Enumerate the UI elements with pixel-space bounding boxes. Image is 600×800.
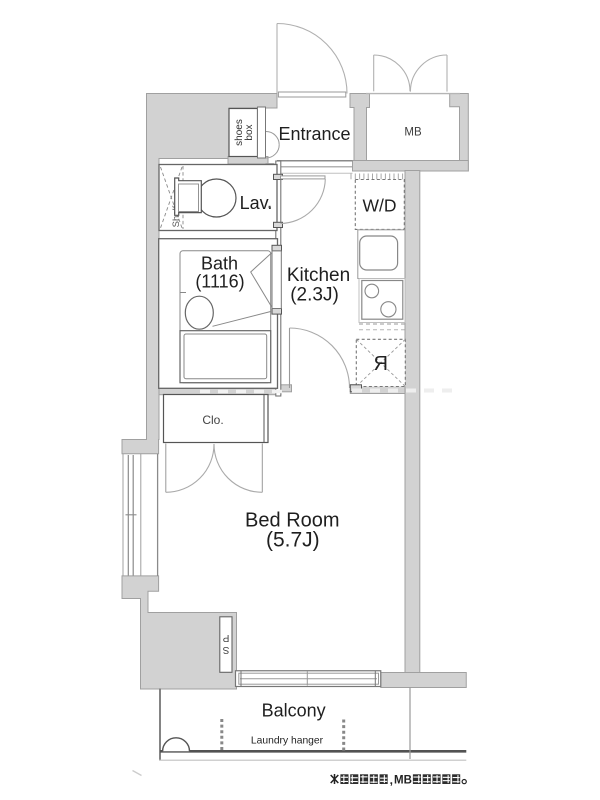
svg-text:(1116): (1116): [195, 272, 244, 292]
svg-text:,: ,: [390, 773, 393, 787]
svg-text:B: B: [404, 775, 412, 787]
svg-text:P: P: [222, 632, 229, 643]
svg-text:Lav.: Lav.: [240, 193, 273, 213]
svg-text:Laundry hanger: Laundry hanger: [251, 736, 324, 747]
svg-text:M: M: [394, 775, 404, 787]
svg-text:Clo.: Clo.: [202, 413, 223, 427]
svg-text:(5.7J): (5.7J): [266, 529, 320, 552]
svg-text:W/D: W/D: [362, 196, 396, 216]
svg-text:Balcony: Balcony: [262, 701, 326, 721]
svg-text:S: S: [222, 644, 229, 655]
svg-text:MB: MB: [404, 127, 422, 139]
svg-text:box: box: [244, 124, 255, 140]
svg-text:R: R: [374, 353, 388, 375]
svg-text:(2.3J): (2.3J): [290, 285, 339, 306]
svg-text:Entrance: Entrance: [278, 124, 350, 144]
svg-text:Kitchen: Kitchen: [287, 265, 350, 286]
svg-text:Bath: Bath: [201, 254, 238, 274]
